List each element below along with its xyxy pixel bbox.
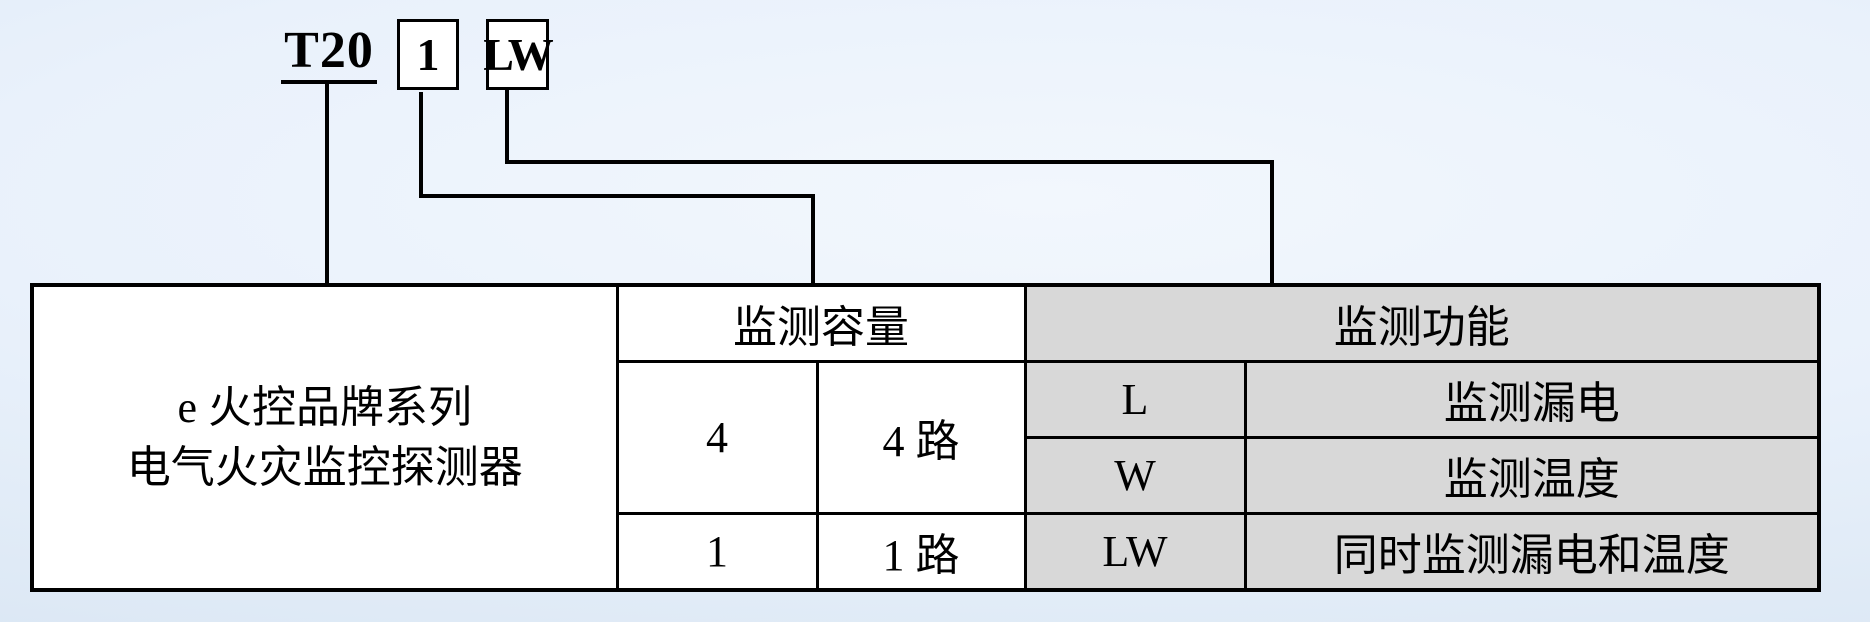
connector-series-vertical: [325, 84, 329, 285]
capacity-desc-cell-4: 4 路: [817, 361, 1025, 513]
capacity-code-box: 1: [397, 19, 459, 90]
function-code-text: LW: [483, 28, 551, 81]
product-series-cell: e 火控品牌系列 电气火灾监控探测器: [32, 285, 617, 590]
connector-capacity-vertical-2: [811, 194, 815, 285]
function-desc-cell-l: 监测漏电: [1245, 361, 1819, 437]
function-code-cell-w: W: [1025, 437, 1245, 513]
model-series-underline: [281, 80, 377, 84]
capacity-code-cell-1: 1: [617, 513, 817, 590]
product-series-line1: e 火控品牌系列: [34, 378, 616, 438]
function-code-cell-l: L: [1025, 361, 1245, 437]
connector-capacity-horizontal: [419, 194, 815, 198]
product-series-line2: 电气火灾监控探测器: [34, 438, 616, 498]
function-code-box: LW: [486, 19, 549, 90]
model-naming-table: e 火控品牌系列 电气火灾监控探测器 监测容量 监测功能 4 4 路 L 监测漏…: [30, 283, 1821, 592]
capacity-code-text: 1: [417, 28, 440, 81]
function-header-cell: 监测功能: [1025, 285, 1819, 361]
connector-function-vertical-1: [505, 90, 509, 164]
function-code-cell-lw: LW: [1025, 513, 1245, 590]
capacity-header-cell: 监测容量: [617, 285, 1025, 361]
function-desc-cell-lw: 同时监测漏电和温度: [1245, 513, 1819, 590]
connector-function-horizontal: [505, 160, 1274, 164]
slide-canvas: T20 1 LW e 火控品牌系列 电气火灾监控探测器 监测容量 监测功能: [0, 0, 1870, 622]
model-series-code: T20: [281, 24, 377, 78]
function-desc-cell-w: 监测温度: [1245, 437, 1819, 513]
connector-function-vertical-2: [1270, 160, 1274, 285]
connector-capacity-vertical-1: [419, 92, 423, 198]
capacity-code-cell-4: 4: [617, 361, 817, 513]
capacity-desc-cell-1: 1 路: [817, 513, 1025, 590]
